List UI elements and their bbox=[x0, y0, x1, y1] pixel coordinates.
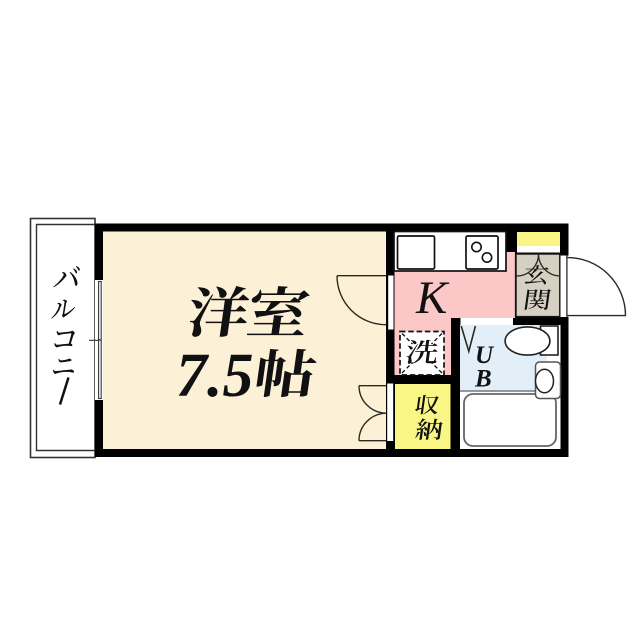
svg-text:7.5: 7.5 bbox=[176, 342, 254, 410]
svg-text:B: B bbox=[474, 366, 492, 393]
svg-text:K: K bbox=[415, 272, 450, 324]
